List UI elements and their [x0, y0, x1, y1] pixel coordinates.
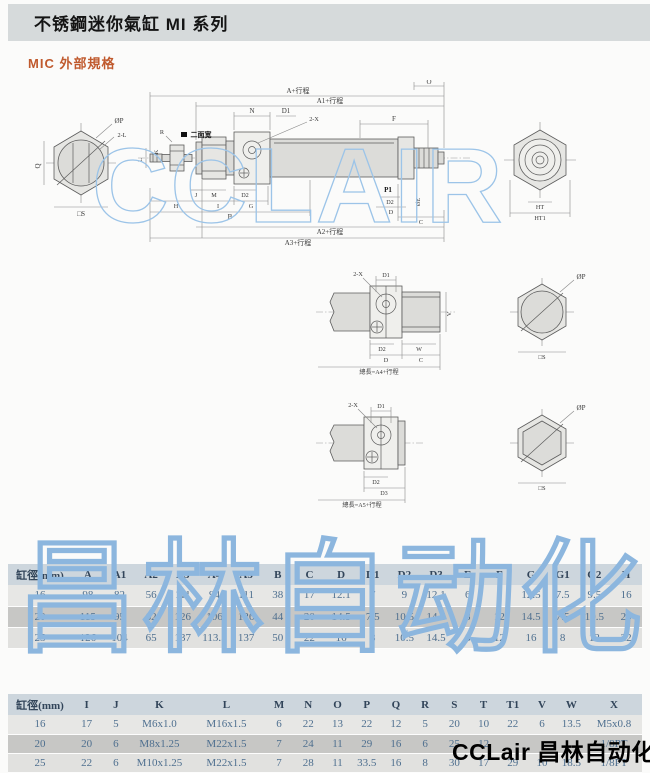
column-header: G — [515, 564, 547, 585]
table-cell: 12.1 — [420, 585, 452, 606]
table-cell: 44 — [262, 606, 294, 627]
dim-label-a1: A1+行程 — [317, 96, 344, 105]
table-cell: 11 — [323, 753, 352, 772]
table-cell: 13 — [323, 715, 352, 734]
table-cell: 111 — [230, 585, 262, 606]
table-cell: 20 — [610, 606, 642, 627]
dim-label-v2-op: ØP — [577, 273, 586, 281]
table-cell: 98 — [72, 585, 104, 606]
table-cell: M22x1.5 — [188, 734, 264, 753]
table-row: 1698825611194111381712.17912.16912.57.59… — [8, 585, 642, 606]
table-cell: 95 — [104, 606, 136, 627]
table-cell: 104 — [104, 627, 136, 648]
table-cell: 22 — [352, 715, 381, 734]
dim-label-v2-d1: D1 — [382, 272, 390, 279]
table-cell: 12.1 — [325, 585, 357, 606]
table-cell: 5 — [411, 715, 440, 734]
table-row: 16175M6x1.0M16x1.56221322125201022613.5M… — [8, 715, 642, 734]
table-cell: M22x1.5 — [188, 753, 264, 772]
table-cell: 56 — [135, 585, 167, 606]
table-cell: 115 — [72, 606, 104, 627]
table-cell: 16 — [381, 734, 410, 753]
table-cell: 10.5 — [389, 627, 421, 648]
dim-label-v2-c: C — [419, 357, 423, 364]
technical-drawing: ØP 2-L Q □S — [0, 80, 650, 565]
column-header: W — [557, 694, 586, 715]
table-cell: 20 — [294, 606, 326, 627]
column-header: N — [294, 694, 323, 715]
table-cell: 10 — [469, 715, 498, 734]
column-header: O — [323, 694, 352, 715]
column-header: G2 — [579, 564, 611, 585]
column-header: R — [411, 694, 440, 715]
column-header: D — [325, 564, 357, 585]
table-cell: 25 — [8, 627, 72, 648]
table-cell: 8 — [547, 627, 579, 648]
table-cell: 20 — [8, 606, 72, 627]
dim-label-s1: □S — [77, 210, 85, 218]
dim-label-v2-total: 總長=A4+行程 — [359, 368, 398, 376]
column-header: A1 — [104, 564, 136, 585]
table-cell: 113.5 — [199, 627, 231, 648]
table-cell: 16 — [8, 585, 72, 606]
rear-end-view: HT HT1 — [504, 122, 576, 222]
table-cell: 94 — [199, 585, 231, 606]
table-cell: 25 — [8, 753, 72, 772]
table-cell: 20 — [72, 734, 101, 753]
header-row: 缸徑(mm)AA1A2A3A4A5BCDD1D2D3EFGG1G2H — [8, 564, 642, 585]
column-header: T1 — [498, 694, 527, 715]
table-cell: 6 — [411, 734, 440, 753]
table-cell: 8 — [357, 627, 389, 648]
dim-label-d1: D1 — [282, 107, 291, 115]
table-cell: 50 — [262, 627, 294, 648]
dim-label-q: Q — [34, 163, 42, 168]
table-cell: 14.5 — [420, 627, 452, 648]
flush-rear-view: D1 2-X D2 D3 總長=A5+行程 ØP □S — [316, 402, 586, 509]
table-cell: 8 — [452, 627, 484, 648]
table-cell: 17 — [72, 715, 101, 734]
column-header: A4 — [199, 564, 231, 585]
table-row: 201159562126106126442014.57.510.514.5812… — [8, 606, 642, 627]
table-cell: 11 — [323, 734, 352, 753]
table-cell: 20 — [8, 734, 72, 753]
table-cell: 6 — [527, 715, 556, 734]
table-cell: 22 — [294, 627, 326, 648]
column-header: H — [610, 564, 642, 585]
table-cell: 12 — [484, 606, 516, 627]
dim-label-op: ØP — [115, 117, 124, 125]
column-header: K — [130, 694, 188, 715]
dim-label-v2-d2: D2 — [378, 346, 386, 353]
table-cell: 126 — [230, 606, 262, 627]
dim-label-v3-2x: 2-X — [348, 402, 358, 409]
table-cell: 126 — [72, 627, 104, 648]
table-cell: 137 — [230, 627, 262, 648]
dim-label-ht1: HT1 — [534, 215, 545, 222]
table-cell: M10x1.25 — [130, 753, 188, 772]
table-cell: 7 — [264, 753, 293, 772]
brand-logo: CCLair 昌林自动化 — [452, 733, 650, 767]
column-header: M — [264, 694, 293, 715]
watermark-cclair: CCLAIR — [92, 127, 504, 245]
table-cell: 16 — [381, 753, 410, 772]
table-cell: 6 — [101, 734, 130, 753]
table-cell: M8x1.25 — [130, 734, 188, 753]
table-row: 2512610465137113.5137502216810.514.58121… — [8, 627, 642, 648]
dim-label-v2-v: V — [446, 311, 453, 316]
column-header: D1 — [357, 564, 389, 585]
table-cell: 62 — [135, 606, 167, 627]
column-header: B — [262, 564, 294, 585]
dim-label-v2-s: □S — [538, 354, 546, 361]
rear-boss-view: D1 2-X V D2 W D C 總長=A4+行程 ØP — [316, 271, 586, 376]
table-cell: 65 — [135, 627, 167, 648]
table-cell: 8 — [452, 606, 484, 627]
dim-label-f: F — [392, 115, 396, 123]
table-cell: 7 — [264, 734, 293, 753]
table-cell: 137 — [167, 627, 199, 648]
table-cell: 22 — [610, 627, 642, 648]
dim-label-2x: 2-X — [309, 116, 319, 123]
dim-label-v2-w: W — [416, 346, 422, 353]
column-header: C — [294, 564, 326, 585]
page-header: 不锈鋼迷你氣缸 MI 系列 — [8, 4, 650, 41]
dimensions-table-1: 缸徑(mm)AA1A2A3A4A5BCDD1D2D3EFGG1G2H169882… — [8, 564, 642, 649]
table-cell: 6 — [101, 753, 130, 772]
flush-rear-hex-view: ØP □S — [510, 404, 586, 492]
table-cell: 5 — [101, 715, 130, 734]
table-cell: 126 — [167, 606, 199, 627]
dim-label-v3-s: □S — [538, 485, 546, 492]
table-cell: 6 — [452, 585, 484, 606]
table-cell: 9 — [484, 585, 516, 606]
column-header: S — [440, 694, 469, 715]
header-row: 缸徑(mm)IJKLMNOPQRSTT1VWX — [8, 694, 642, 715]
table-cell: 7.5 — [357, 606, 389, 627]
dim-label-n: N — [249, 107, 254, 115]
table-cell: 22 — [498, 715, 527, 734]
dim-label-v3-d3: D3 — [380, 490, 388, 497]
dim-label-v3-op: ØP — [577, 404, 586, 412]
table-cell: 20 — [440, 715, 469, 734]
table-cell: 16 — [8, 715, 72, 734]
table-cell: 22 — [72, 753, 101, 772]
column-header: A3 — [167, 564, 199, 585]
column-header: D2 — [389, 564, 421, 585]
dim-label-a: A+行程 — [286, 86, 309, 95]
column-header: D3 — [420, 564, 452, 585]
table-cell: 7 — [357, 585, 389, 606]
column-header: 缸徑(mm) — [8, 694, 72, 715]
table-cell: 7.5 — [547, 606, 579, 627]
column-header: P — [352, 694, 381, 715]
table-cell: 6 — [264, 715, 293, 734]
dim-label-v3-total: 總長=A5+行程 — [342, 501, 381, 509]
column-header: A — [72, 564, 104, 585]
section-title: MIC 外部規格 — [28, 53, 115, 72]
column-header: X — [586, 694, 642, 715]
table-cell: 12 — [381, 715, 410, 734]
column-header: E — [452, 564, 484, 585]
table-cell: 7.5 — [547, 585, 579, 606]
table-cell: 14.5 — [325, 606, 357, 627]
table-cell: 29 — [352, 734, 381, 753]
column-header: F — [484, 564, 516, 585]
table-cell: 8 — [411, 753, 440, 772]
table-cell: M6x1.0 — [130, 715, 188, 734]
column-header: J — [101, 694, 130, 715]
page-title: 不锈鋼迷你氣缸 MI 系列 — [8, 10, 228, 35]
column-header: A5 — [230, 564, 262, 585]
column-header: A2 — [135, 564, 167, 585]
table-cell: 82 — [104, 585, 136, 606]
dim-label-v2-2x: 2-X — [353, 271, 363, 278]
column-header: 缸徑(mm) — [8, 564, 72, 585]
table-cell: 12 — [579, 627, 611, 648]
table-cell: M16x1.5 — [188, 715, 264, 734]
table-cell: 9.5 — [579, 585, 611, 606]
table-cell: 10.5 — [389, 606, 421, 627]
dim-label-ht: HT — [536, 204, 544, 211]
table-cell: 16 — [515, 627, 547, 648]
table-cell: 28 — [294, 753, 323, 772]
column-header: V — [527, 694, 556, 715]
table-cell: 13.5 — [557, 715, 586, 734]
column-header: I — [72, 694, 101, 715]
column-header: L — [188, 694, 264, 715]
table-cell: 16 — [610, 585, 642, 606]
column-header: Q — [381, 694, 410, 715]
column-header: T — [469, 694, 498, 715]
table-cell: 22 — [294, 715, 323, 734]
dim-label-v2-d: D — [384, 357, 389, 364]
table-cell: M5x0.8 — [586, 715, 642, 734]
table-cell: 12.5 — [515, 585, 547, 606]
table-cell: 10.5 — [579, 606, 611, 627]
dim-label-o: O — [426, 80, 431, 86]
table-cell: 14.5 — [420, 606, 452, 627]
table-cell: 38 — [262, 585, 294, 606]
table-cell: 17 — [294, 585, 326, 606]
table-cell: 106 — [199, 606, 231, 627]
table-cell: 33.5 — [352, 753, 381, 772]
table-cell: 14.5 — [515, 606, 547, 627]
table-cell: 12 — [484, 627, 516, 648]
table-cell: 16 — [325, 627, 357, 648]
column-header: G1 — [547, 564, 579, 585]
table-cell: 24 — [294, 734, 323, 753]
dim-label-v3-d2: D2 — [372, 479, 380, 486]
table-cell: 9 — [389, 585, 421, 606]
table-cell: 111 — [167, 585, 199, 606]
rear-boss-hex-view: ØP □S — [510, 273, 586, 361]
dim-label-v3-d1: D1 — [377, 403, 385, 410]
